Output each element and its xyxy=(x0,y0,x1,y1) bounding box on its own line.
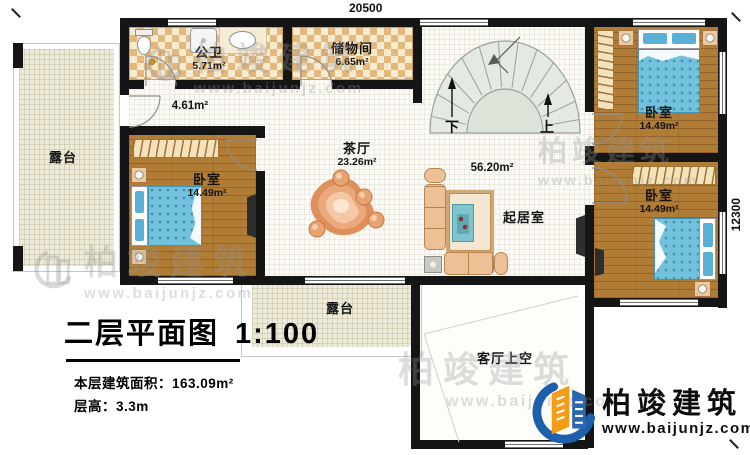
room-name: 卧室 xyxy=(639,105,678,120)
title-underline xyxy=(66,359,240,362)
pillow xyxy=(642,32,668,45)
terrace-bottom-label: 露台 xyxy=(326,301,354,316)
room-area: 14.49m² xyxy=(639,203,678,215)
dimension-right: 12300 xyxy=(729,198,743,231)
room-name: 储物间 xyxy=(331,41,373,56)
sofa xyxy=(444,252,494,275)
room-name: 公卫 xyxy=(192,45,225,60)
room-area: 14.49m² xyxy=(187,187,226,199)
room-area: 5.71m² xyxy=(192,60,225,72)
window xyxy=(305,277,405,284)
floor-plan: 下 上 xyxy=(0,0,750,455)
company-name: 柏竣建筑 xyxy=(602,389,750,421)
storage-label: 储物间 6.65m² xyxy=(331,41,373,69)
floor-area-label: 本层建筑面积：163.09m² xyxy=(74,372,319,392)
room-area: 4.61m² xyxy=(172,100,208,114)
window xyxy=(633,19,705,26)
sofa-armrest xyxy=(424,168,446,183)
dimension-tick xyxy=(11,8,21,18)
wall xyxy=(585,27,594,112)
terrace-left-label: 露台 xyxy=(49,150,77,165)
wall xyxy=(585,153,727,162)
company-logo-icon xyxy=(524,378,598,448)
nightstand xyxy=(131,249,147,265)
room-area: 14.49m² xyxy=(639,120,678,132)
door-knob xyxy=(149,59,155,65)
window xyxy=(719,212,726,274)
nightstand xyxy=(618,30,634,46)
sofa-armrest xyxy=(494,252,508,275)
tea-hall-label: 茶厅 23.26m² xyxy=(337,141,376,169)
wardrobe xyxy=(133,139,219,158)
wall xyxy=(120,80,144,89)
floor-height-label: 层高：3.3m xyxy=(74,395,319,415)
nightstand xyxy=(694,281,711,297)
room-name: 客厅上空 xyxy=(477,351,533,366)
open-area-label: 56.20m² xyxy=(471,162,514,176)
wall xyxy=(332,80,422,89)
room-name: 茶厅 xyxy=(337,141,376,156)
wall xyxy=(256,171,265,285)
wardrobe xyxy=(632,166,716,185)
page-title: 二层平面图 xyxy=(64,310,219,352)
dimension-tick xyxy=(731,12,741,22)
room-name: 露台 xyxy=(326,301,354,316)
bedroom-left-label: 卧室 14.49m² xyxy=(187,172,226,200)
wall xyxy=(283,27,292,80)
scale-label: 1:100 xyxy=(235,318,319,351)
room-area: 6.65m² xyxy=(331,56,373,68)
tea-table xyxy=(300,168,388,244)
side-table xyxy=(424,256,442,273)
bedroom-top-right-label: 卧室 14.49m² xyxy=(639,105,678,133)
wall xyxy=(13,43,23,68)
coffee-table xyxy=(452,204,474,242)
pillow xyxy=(134,190,145,214)
pillow xyxy=(702,251,714,277)
window xyxy=(719,52,726,114)
pillow xyxy=(671,32,697,45)
wardrobe xyxy=(597,30,614,110)
wall xyxy=(413,18,422,103)
sofa xyxy=(424,184,446,250)
toilet-tank xyxy=(135,29,153,36)
room-name: 卧室 xyxy=(639,188,678,203)
pillow xyxy=(702,222,714,248)
room-name: 起居室 xyxy=(503,210,545,225)
dimension-top: 20500 xyxy=(349,1,382,15)
wall xyxy=(120,126,260,135)
title-block: 二层平面图 1:100 本层建筑面积：163.09m² 层高：3.3m xyxy=(64,310,319,415)
room-area: 56.20m² xyxy=(471,162,514,176)
pillow xyxy=(134,218,145,242)
hallway-label: 4.61m² xyxy=(172,100,208,114)
room-name: 卧室 xyxy=(187,172,226,187)
wall xyxy=(175,80,300,89)
tv xyxy=(576,215,585,257)
bathroom-label: 公卫 5.71m² xyxy=(192,45,225,73)
company-logo: 柏竣建筑 www.baijunjz.com xyxy=(524,378,750,448)
stairs-down-label: 下 xyxy=(445,117,459,137)
company-website: www.baijunjz.com xyxy=(602,420,750,437)
room-area: 23.26m² xyxy=(337,156,376,168)
tv xyxy=(247,194,256,238)
window xyxy=(620,299,698,306)
stairs-up-label: 上 xyxy=(540,117,554,137)
window xyxy=(420,19,488,26)
wall xyxy=(256,126,265,138)
sink-basin xyxy=(229,31,256,49)
nightstand xyxy=(131,167,147,183)
wall xyxy=(120,127,129,285)
room-name: 露台 xyxy=(49,150,77,165)
nightstand xyxy=(702,30,718,46)
watermark-url: www.baijunjz.com xyxy=(84,285,256,302)
bedroom-bottom-right-label: 卧室 14.49m² xyxy=(639,188,678,216)
window xyxy=(158,277,233,284)
wall xyxy=(13,246,23,271)
void-label: 客厅上空 xyxy=(477,351,533,366)
wall xyxy=(411,285,420,448)
window xyxy=(168,19,216,26)
living-room-label: 起居室 xyxy=(503,210,545,225)
tv xyxy=(595,248,604,276)
